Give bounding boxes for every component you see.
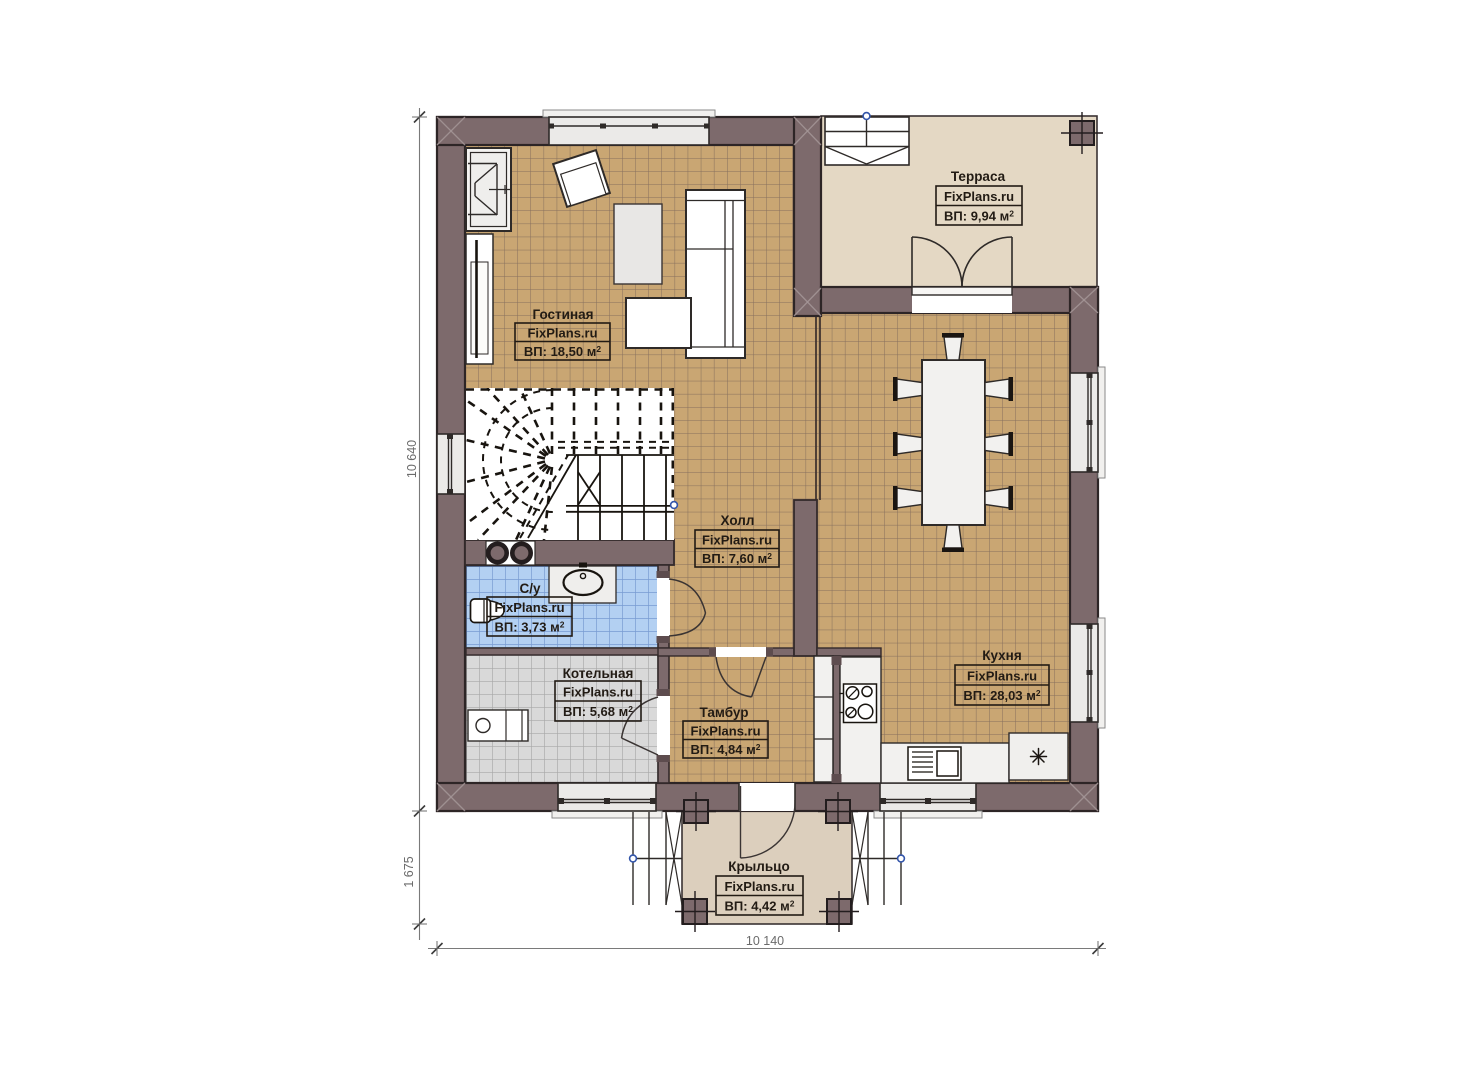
svg-text:Терраса: Терраса bbox=[951, 169, 1006, 184]
svg-text:FixPlans.ru: FixPlans.ru bbox=[494, 600, 564, 615]
svg-text:ВП: 7,60 м2: ВП: 7,60 м2 bbox=[702, 551, 772, 566]
svg-text:Котельная: Котельная bbox=[563, 666, 634, 681]
svg-text:ВП: 9,94 м2: ВП: 9,94 м2 bbox=[944, 209, 1014, 224]
svg-text:ВП: 4,42 м2: ВП: 4,42 м2 bbox=[725, 899, 795, 914]
svg-text:С/у: С/у bbox=[519, 581, 541, 596]
svg-text:FixPlans.ru: FixPlans.ru bbox=[527, 326, 597, 341]
svg-text:ВП: 28,03 м2: ВП: 28,03 м2 bbox=[963, 688, 1040, 703]
svg-text:ВП: 18,50 м2: ВП: 18,50 м2 bbox=[524, 344, 601, 359]
svg-text:Крыльцо: Крыльцо bbox=[728, 859, 789, 874]
svg-text:ВП: 5,68 м2: ВП: 5,68 м2 bbox=[563, 704, 633, 719]
svg-text:10 140: 10 140 bbox=[746, 934, 784, 948]
svg-text:Гостиная: Гостиная bbox=[532, 307, 593, 322]
svg-text:Тамбур: Тамбур bbox=[700, 705, 749, 720]
svg-text:FixPlans.ru: FixPlans.ru bbox=[563, 685, 633, 700]
svg-text:10 640: 10 640 bbox=[405, 440, 419, 478]
svg-text:FixPlans.ru: FixPlans.ru bbox=[944, 189, 1014, 204]
svg-text:FixPlans.ru: FixPlans.ru bbox=[724, 879, 794, 894]
svg-text:FixPlans.ru: FixPlans.ru bbox=[702, 533, 772, 548]
svg-text:1 675: 1 675 bbox=[402, 856, 416, 887]
svg-text:Холл: Холл bbox=[721, 513, 755, 528]
svg-text:ВП: 4,84 м2: ВП: 4,84 м2 bbox=[691, 742, 761, 757]
svg-text:Кухня: Кухня bbox=[982, 648, 1021, 663]
svg-text:FixPlans.ru: FixPlans.ru bbox=[690, 724, 760, 739]
svg-text:FixPlans.ru: FixPlans.ru bbox=[967, 669, 1037, 684]
svg-text:ВП: 3,73 м2: ВП: 3,73 м2 bbox=[495, 620, 565, 635]
